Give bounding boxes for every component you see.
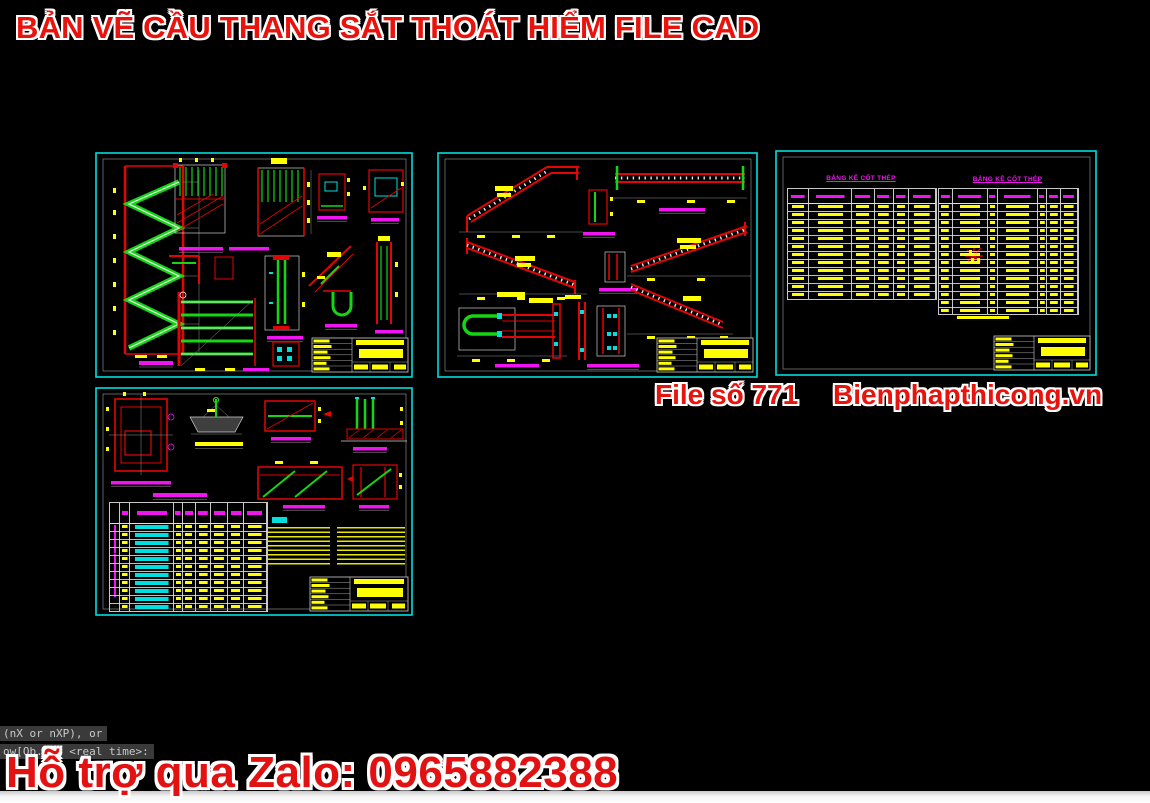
sheet-stair-sections: [437, 152, 758, 378]
stair-plan-view-1: [173, 158, 227, 233]
landing-beam-elevation: [612, 166, 747, 214]
sheet-foundation-details: [95, 387, 413, 616]
brace-connection-detail: [347, 465, 402, 511]
website-watermark: Bienphapthicong.vn: [833, 379, 1102, 411]
stair-plan-view-2: [258, 158, 311, 236]
stringer-section-detail: [265, 256, 305, 342]
page-title: BẢN VẼ CẦU THANG SẮT THOÁT HIỂM FILE CAD: [16, 10, 759, 46]
title-block: [310, 577, 408, 611]
stair-sections-drawing: [437, 152, 758, 378]
rebar-table-title-bar: [153, 493, 207, 497]
gusset-triangle-detail: [309, 246, 353, 292]
stair-elevation-zigzag: [113, 166, 199, 367]
watermark-row: File số 771 Bienphapthicong.vn: [0, 379, 1150, 411]
post-section-detail: [375, 236, 403, 334]
sheet-steel-schedule: BẢNG KÊ CỐT THÉP BẢNG KÊ CỐT THÉP: [775, 150, 1097, 376]
title-block: [994, 336, 1090, 370]
handrail-return-detail: [457, 292, 581, 368]
base-plate-detail-2: [363, 170, 404, 224]
zalo-support-banner: Hỗ trợ qua Zalo: 0965882388: [6, 748, 618, 798]
title-block: [312, 338, 408, 372]
schedule-table-1-title: BẢNG KÊ CỐT THÉP: [787, 175, 935, 182]
rebar-schedule-table: [109, 502, 268, 612]
stair-section-right-down: [627, 284, 733, 339]
splice-plate-detail: [243, 342, 299, 371]
base-plate-detail-1: [317, 174, 350, 222]
autocad-screenshot-viewport: BẢN VẼ CẦU THANG SẮT THOÁT HIỂM FILE CAD: [0, 0, 1150, 803]
column-section-detail: [583, 190, 615, 238]
stair-section-upper-flight: [459, 167, 583, 238]
schedule-table-2-title: BẢNG KÊ CỐT THÉP: [938, 176, 1077, 183]
stair-section-right-up: [627, 222, 751, 281]
stair-section-lower-flight: [459, 238, 587, 300]
flight-frame-plan-detail: [179, 292, 255, 371]
braced-frame-detail: [258, 461, 342, 511]
notes-heading-highlight: [272, 517, 287, 523]
notes-paragraph-left: [268, 527, 330, 567]
sheet-stair-details: [95, 152, 413, 378]
schedule-footnote-bar: [957, 316, 1009, 319]
column-splice-details: [553, 302, 639, 370]
command-line-history[interactable]: (nX or nXP), or: [0, 726, 107, 741]
file-number-watermark: File số 771: [655, 379, 798, 411]
schedule-table-1: [787, 188, 937, 300]
notes-paragraph-right: [337, 527, 405, 567]
stair-details-drawing: [95, 152, 413, 378]
title-block: [657, 338, 753, 372]
schedule-table-2: [938, 188, 1079, 315]
handrail-u-detail: [323, 291, 357, 330]
